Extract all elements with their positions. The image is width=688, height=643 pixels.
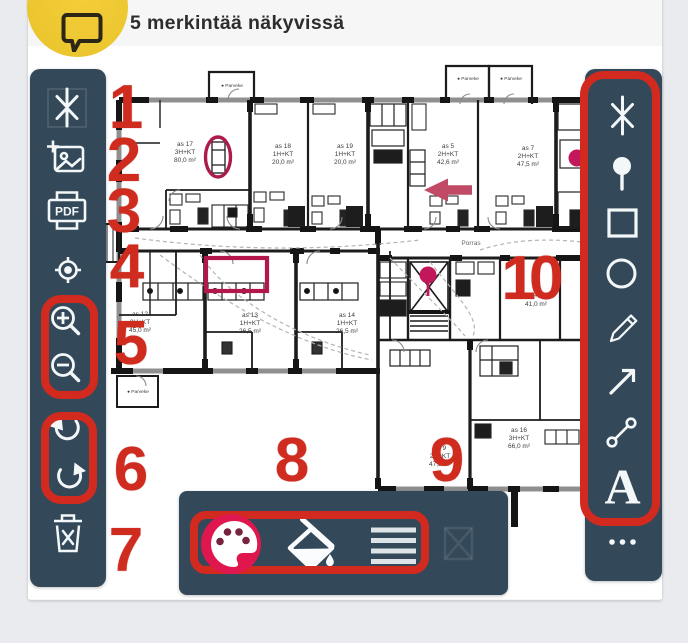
svg-text:Porras: Porras [461, 240, 481, 247]
svg-text:as 13: as 13 [242, 312, 258, 319]
svg-text:2H+KT: 2H+KT [518, 153, 538, 160]
svg-text:● Parveke: ● Parveke [127, 389, 149, 395]
svg-text:3H+KT: 3H+KT [175, 149, 195, 156]
svg-text:PDF: PDF [55, 205, 79, 219]
svg-text:● Parveke: ● Parveke [500, 76, 522, 82]
svg-text:as 19: as 19 [337, 143, 353, 150]
svg-text:42,6 m²: 42,6 m² [437, 159, 460, 166]
svg-text:47,5 m²: 47,5 m² [517, 161, 540, 168]
svg-text:as 14: as 14 [339, 312, 355, 319]
svg-text:as 16: as 16 [511, 427, 527, 434]
svg-text:26,5 m²: 26,5 m² [239, 328, 262, 335]
svg-text:● Parveke: ● Parveke [221, 83, 243, 89]
svg-text:3H+KT: 3H+KT [509, 435, 529, 442]
svg-text:as 7: as 7 [522, 145, 535, 152]
svg-text:1H+KT: 1H+KT [337, 320, 357, 327]
svg-text:as 5: as 5 [442, 143, 455, 150]
svg-text:as 18: as 18 [275, 143, 291, 150]
svg-text:1H+KT: 1H+KT [240, 320, 260, 327]
svg-text:80,0 m²: 80,0 m² [174, 157, 197, 164]
svg-text:1H+KT: 1H+KT [273, 151, 293, 158]
svg-text:1H+KT: 1H+KT [335, 151, 355, 158]
svg-text:2H+KT: 2H+KT [438, 151, 458, 158]
svg-text:as 17: as 17 [177, 141, 193, 148]
svg-text:20,0 m²: 20,0 m² [272, 159, 295, 166]
svg-text:66,0 m²: 66,0 m² [508, 443, 531, 450]
svg-text:● Parveke: ● Parveke [457, 76, 479, 82]
svg-text:26,5 m²: 26,5 m² [336, 328, 359, 335]
svg-text:20,0 m²: 20,0 m² [334, 159, 357, 166]
